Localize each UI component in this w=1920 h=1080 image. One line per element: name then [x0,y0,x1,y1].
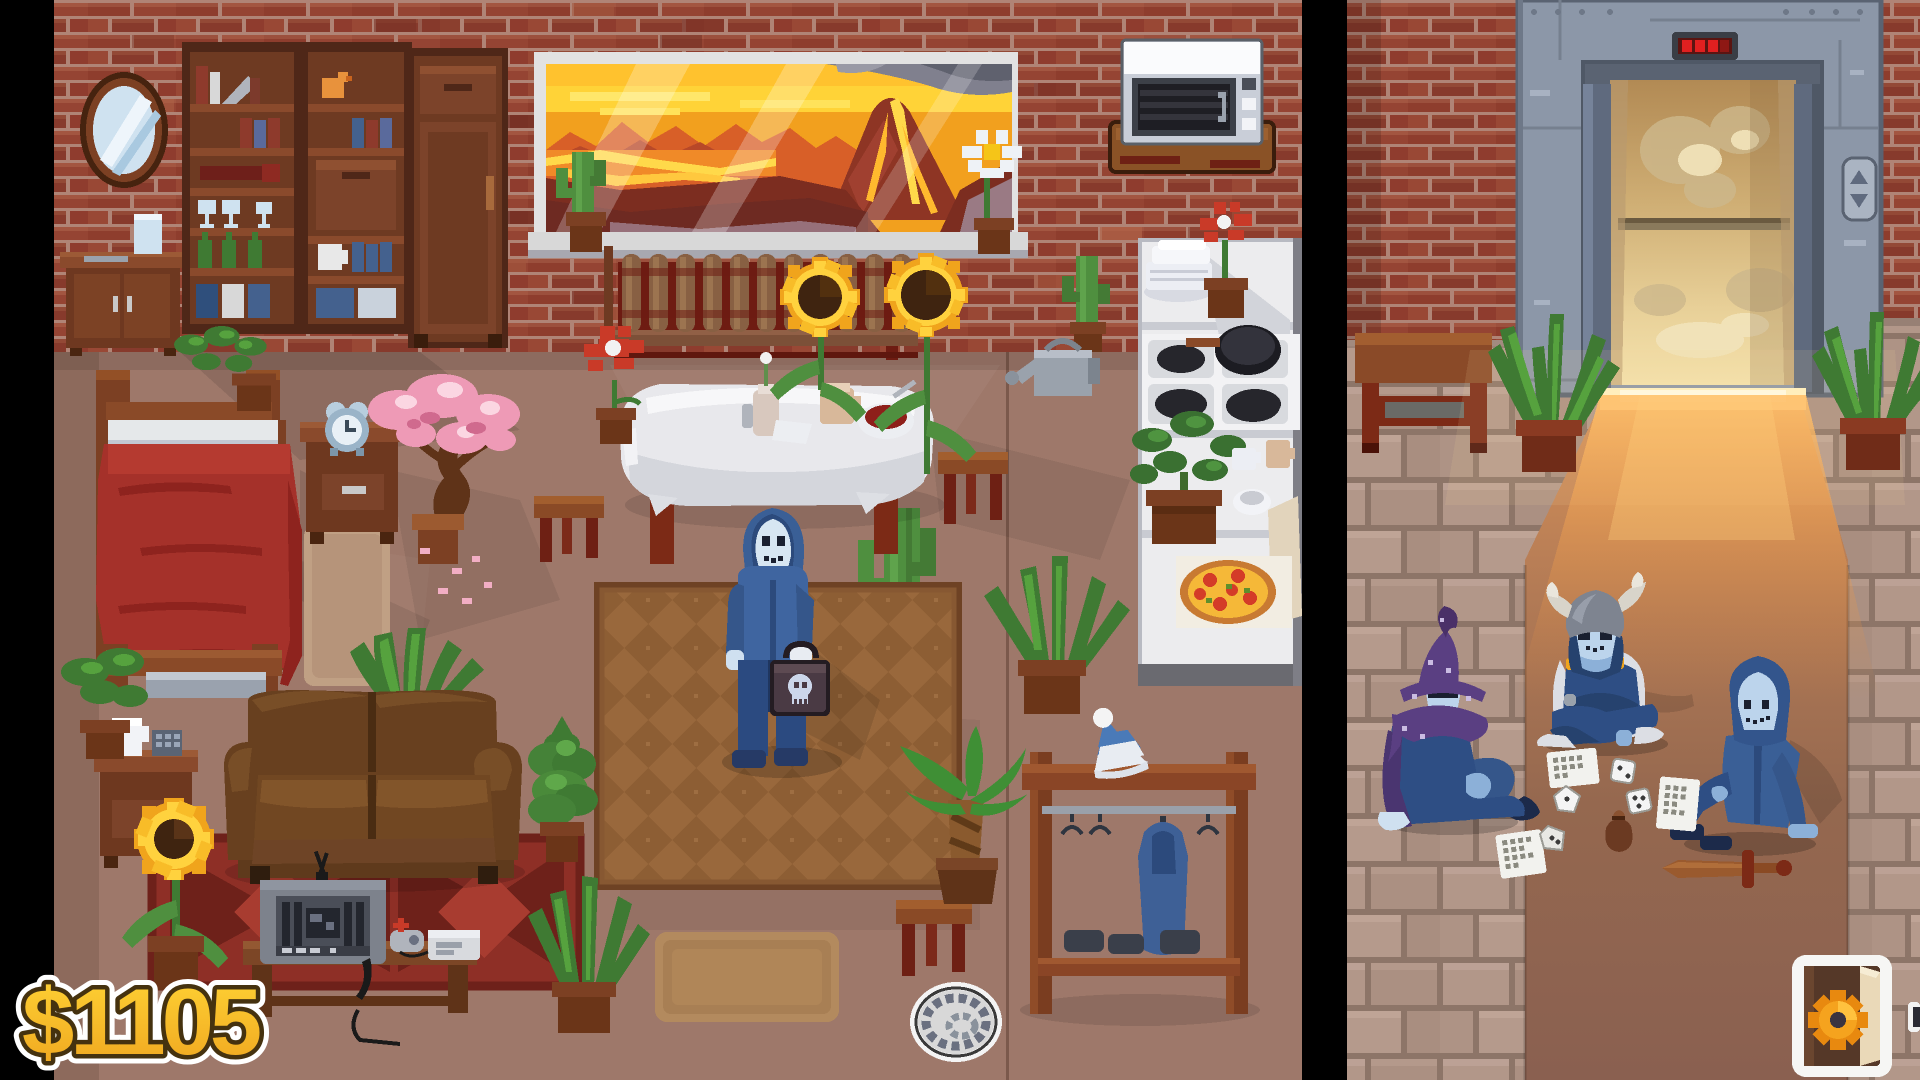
svg-text:$1105: $1105 [22,969,260,1074]
